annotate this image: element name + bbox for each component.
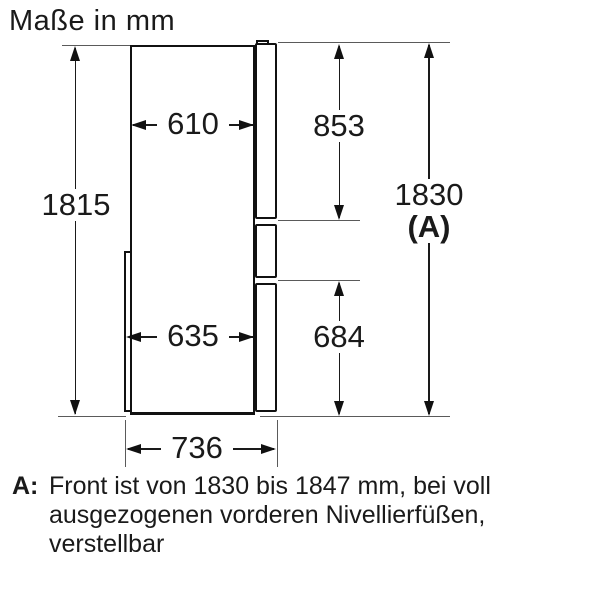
extension-line-bottom-left xyxy=(58,416,126,417)
arrow-left-icon xyxy=(131,120,146,130)
extension-line-door-split-lower xyxy=(278,280,360,281)
arrow-up-icon xyxy=(334,281,344,296)
footnote: A: Front ist von 1830 bis 1847 mm, bei v… xyxy=(12,472,491,559)
footnote-line: ausgezogenen vorderen Nivellierfüßen, xyxy=(49,501,491,530)
extension-line-depth-right xyxy=(277,420,278,467)
footnote-line: verstellbar xyxy=(49,530,491,559)
arrow-down-icon xyxy=(334,205,344,220)
arrow-down-icon xyxy=(334,401,344,416)
extension-line-bottom-right xyxy=(260,416,450,417)
arrow-up-icon xyxy=(70,46,80,61)
upper-door-panel xyxy=(255,43,277,219)
middle-drawer-panel xyxy=(255,224,277,278)
footnote-label: A: xyxy=(12,472,49,501)
arrow-right-icon xyxy=(261,444,276,454)
dim-label-lower-door-height: 684 xyxy=(303,321,375,353)
page-title: Maße in mm xyxy=(9,5,175,38)
arrow-right-icon xyxy=(239,332,254,342)
dim-label-body-depth-top: 610 xyxy=(157,108,229,140)
lower-door-panel xyxy=(255,283,277,412)
extension-line-door-split-upper xyxy=(278,220,360,221)
arrow-down-icon xyxy=(70,400,80,415)
dimension-diagram: Maße in mm 1815 610 853 684 1830 (A) 63 xyxy=(0,0,600,600)
arrow-up-icon xyxy=(334,44,344,59)
arrow-right-icon xyxy=(239,120,254,130)
dim-label-total-depth: 736 xyxy=(161,432,233,464)
dim-label-total-height-value: 1830 xyxy=(392,179,466,211)
dim-label-body-depth-bottom: 635 xyxy=(157,320,229,352)
arrow-left-icon xyxy=(126,332,141,342)
rear-panel-step-bottom xyxy=(124,410,132,412)
dim-label-total-height-marker: (A) xyxy=(392,211,466,243)
dim-label-total-height: 1830 (A) xyxy=(392,179,466,243)
arrow-down-icon xyxy=(424,401,434,416)
arrow-up-icon xyxy=(424,43,434,58)
footnote-text: Front ist von 1830 bis 1847 mm, bei voll… xyxy=(49,472,491,559)
dim-label-upper-door-height: 853 xyxy=(303,110,375,142)
arrow-left-icon xyxy=(126,444,141,454)
appliance-body-outline xyxy=(130,45,255,415)
dim-1815-line xyxy=(75,48,77,414)
dim-label-body-height: 1815 xyxy=(39,189,113,221)
footnote-line: Front ist von 1830 bis 1847 mm, bei voll xyxy=(49,472,491,501)
